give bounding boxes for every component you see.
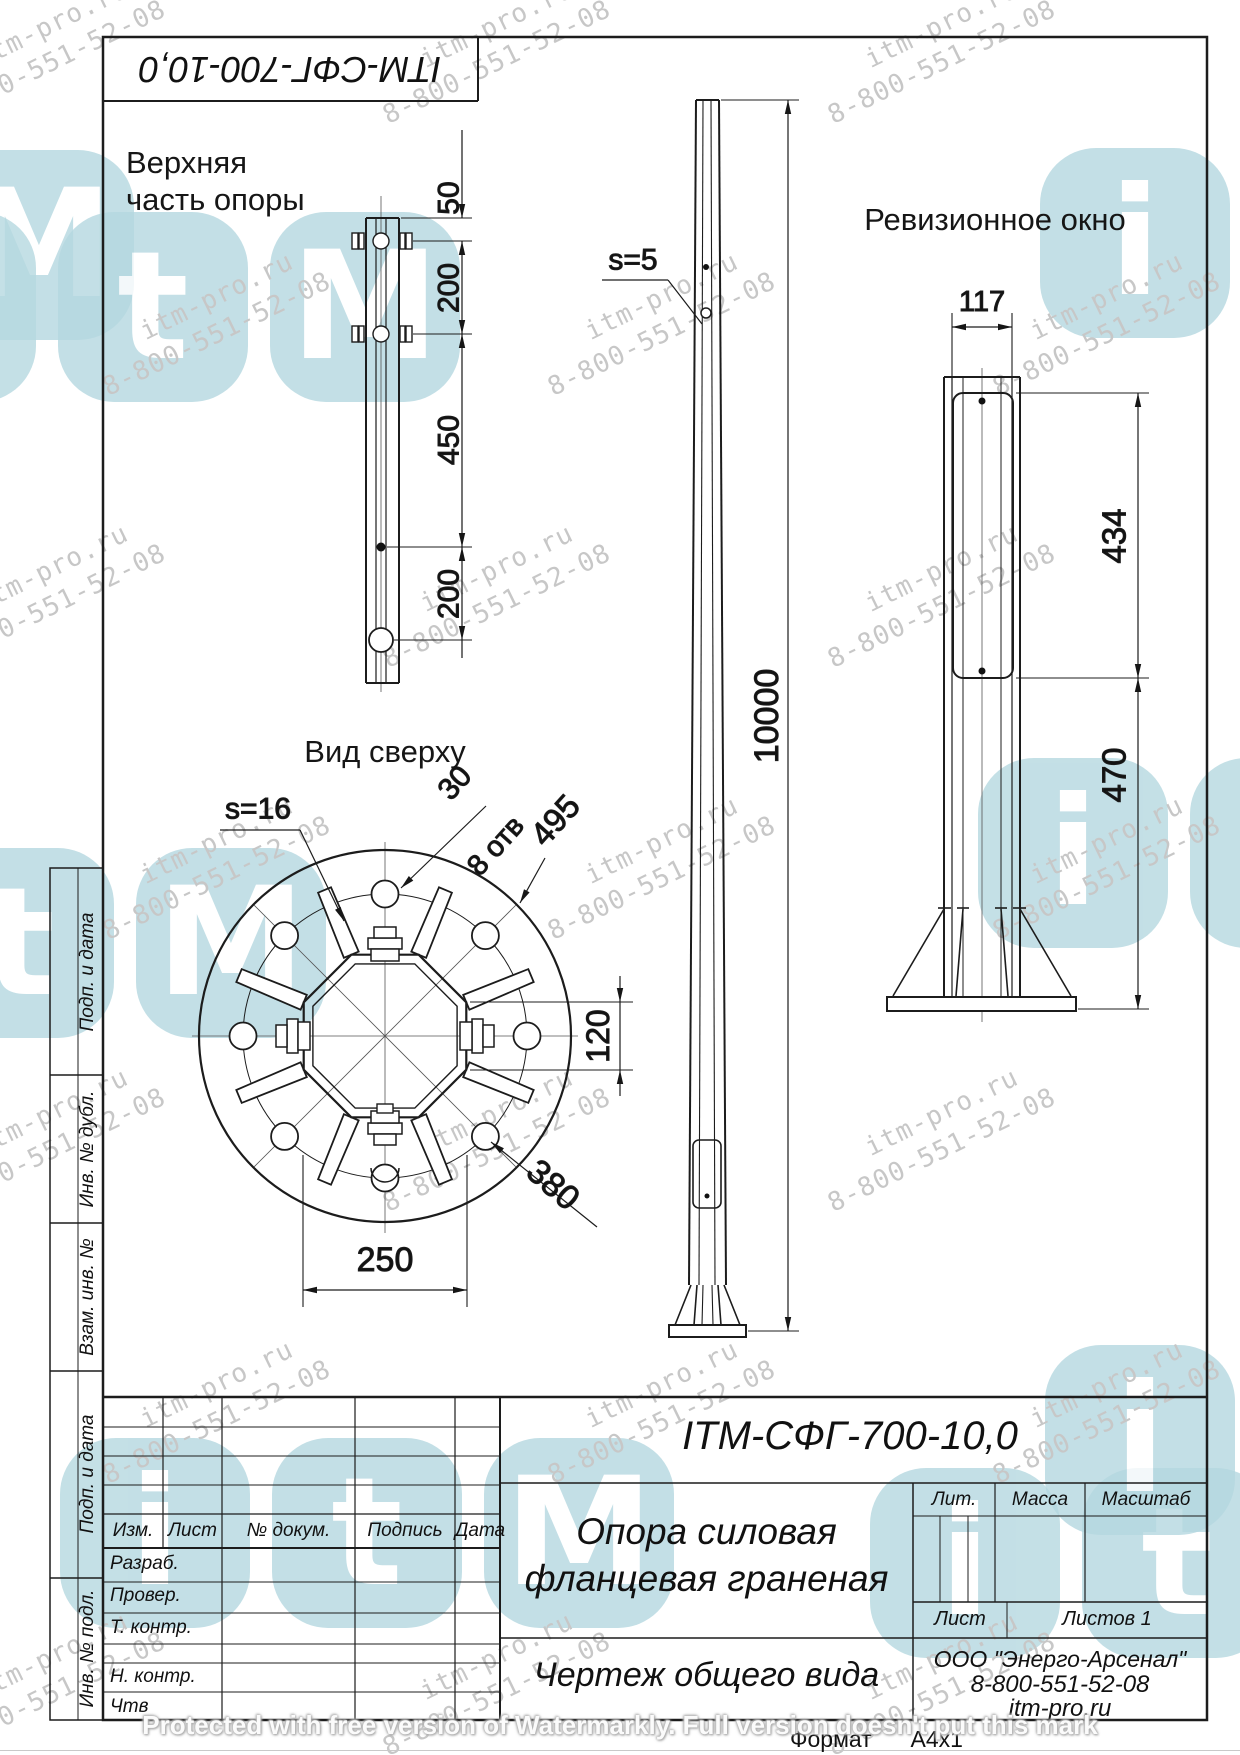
dim-450: 450: [433, 415, 466, 465]
tb-row-developed: Разраб.: [110, 1553, 220, 1575]
tb-header-lit: Лит.: [913, 1489, 995, 1511]
tb-header-list: Лист: [163, 1520, 222, 1542]
tb-header-date: Дата: [455, 1520, 500, 1542]
dim-117: 117: [959, 286, 1005, 318]
tb-doc-type: Чертеж общего вида: [500, 1656, 913, 1695]
dim-250: 250: [357, 1241, 414, 1279]
dim-120: 120: [580, 1009, 616, 1062]
flange-thickness-label: s=16: [225, 793, 291, 826]
tb-sheet: Лист: [913, 1608, 1007, 1631]
top-designation-box: ITM-СФГ-700-10,0: [103, 37, 478, 101]
dim-434: 434: [1096, 508, 1133, 563]
dim-200-bottom: 200: [433, 569, 466, 619]
tb-header-izm: Изм.: [103, 1520, 163, 1542]
dim-10000: 10000: [748, 669, 786, 764]
tb-header-sign: Подпись: [355, 1520, 455, 1542]
tb-doc-number: ITM-СФГ-700-10,0: [600, 1414, 1100, 1459]
tb-title-line1: Опора силовая: [500, 1511, 913, 1553]
tb-header-mass: Масса: [995, 1489, 1085, 1511]
drawing-sheet: MiittMitMitMiti itm-pro.ru8-800-551-52-0…: [0, 0, 1240, 1755]
dim-470: 470: [1096, 747, 1133, 802]
heading-top-view: Вид сверху: [280, 734, 490, 770]
dim-200-top: 200: [433, 263, 466, 313]
heading-top-detail: Верхняя часть опоры: [126, 144, 356, 218]
wall-thickness-label: s=5: [608, 244, 657, 277]
tb-sheets: Листов 1: [1007, 1608, 1207, 1631]
tb-header-scale: Масштаб: [1085, 1489, 1207, 1511]
top-designation-text: ITM-СФГ-700-10,0: [139, 48, 441, 90]
tb-row-tcontrol: Т. контр.: [110, 1617, 222, 1639]
view-elevation: s=5 10000: [602, 100, 799, 1337]
tb-row-ncontrol: Н. контр.: [110, 1666, 222, 1688]
tb-header-doc: № докум.: [222, 1520, 355, 1542]
view-top-detail: 50 200 450 200: [352, 130, 472, 692]
sheet-frame: [50, 37, 1207, 1720]
heading-revision-window: Ревизионное окно: [830, 202, 1160, 238]
watermarkly-notice: Protected with free version of Watermark…: [0, 1710, 1240, 1741]
tb-title-line2: фланцевая граненая: [500, 1558, 913, 1600]
dim-380: 380: [519, 1152, 587, 1218]
tb-company: ООО "Энерго-Арсенал": [913, 1646, 1207, 1673]
tb-row-checked: Провер.: [110, 1585, 220, 1607]
view-top: 120 250 s=16 30 8 отв 495 380: [192, 760, 633, 1307]
dim-50: 50: [433, 181, 466, 214]
view-revision-window: 117 434 470: [887, 286, 1149, 1022]
holes-count-label: 8 отв: [461, 810, 531, 882]
dim-495: 495: [523, 787, 587, 853]
